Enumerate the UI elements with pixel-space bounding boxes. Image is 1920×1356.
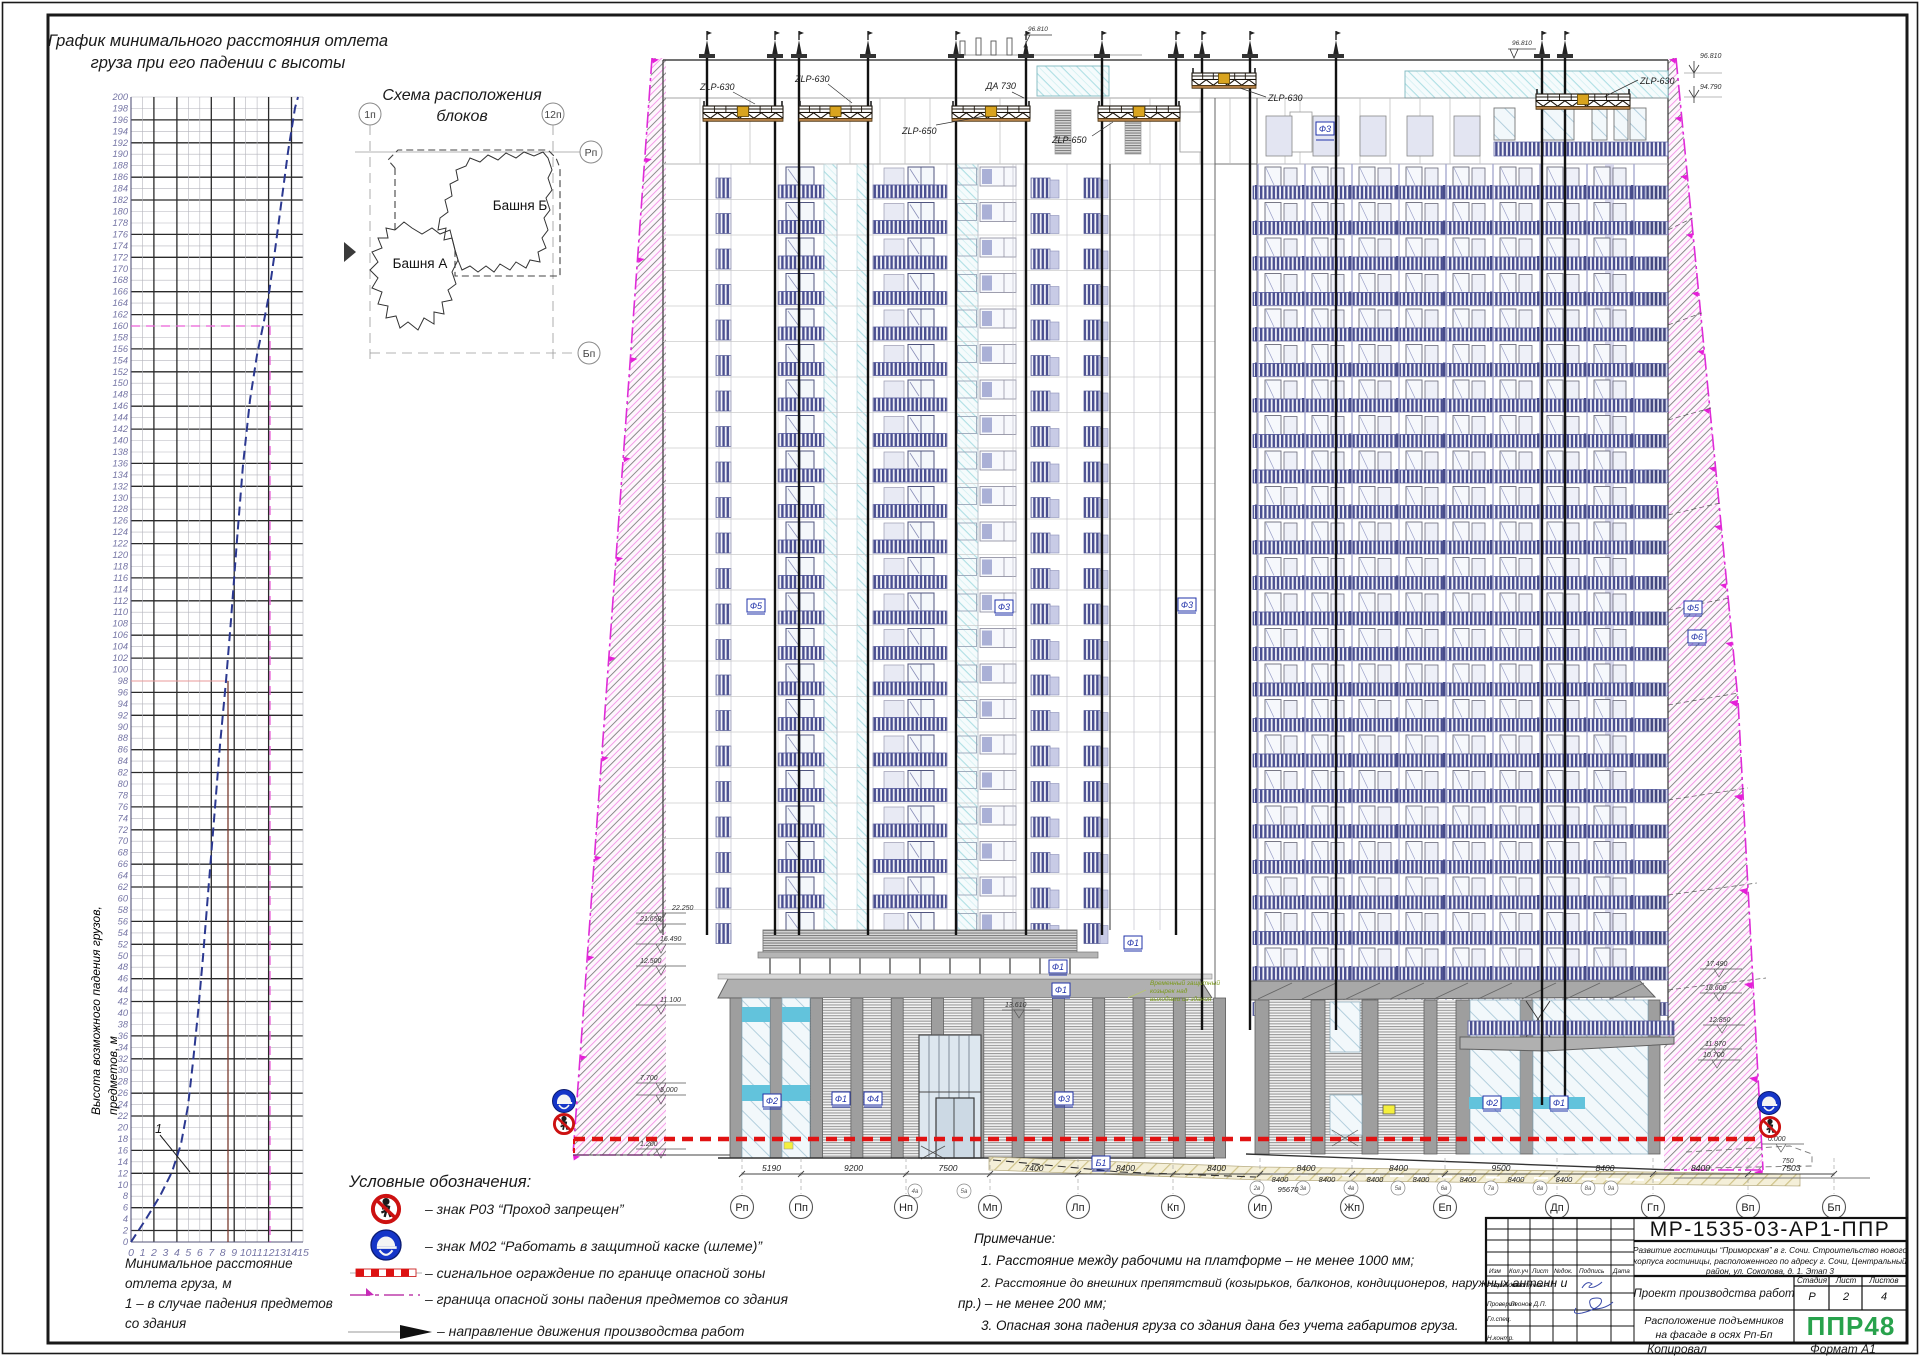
svg-text:132: 132 [112, 481, 128, 491]
svg-text:груза при его падении с высоты: груза при его падении с высоты [91, 54, 346, 72]
svg-text:Условные обозначения:: Условные обозначения: [348, 1173, 531, 1191]
svg-text:92: 92 [118, 710, 129, 720]
svg-text:12.500: 12.500 [640, 958, 662, 965]
svg-text:Вп: Вп [1741, 1202, 1754, 1214]
svg-text:8400: 8400 [1691, 1163, 1710, 1173]
svg-text:190: 190 [112, 149, 128, 159]
svg-text:ZLP-630: ZLP-630 [1267, 93, 1303, 103]
svg-text:7500: 7500 [939, 1163, 958, 1173]
svg-text:198: 198 [112, 104, 128, 114]
svg-text:86: 86 [118, 745, 129, 755]
svg-text:74: 74 [118, 813, 128, 823]
svg-text:156: 156 [112, 344, 128, 354]
svg-text:Ф1: Ф1 [1127, 938, 1139, 948]
svg-text:6: 6 [123, 1203, 129, 1213]
svg-text:8400: 8400 [1297, 1163, 1316, 1173]
svg-text:Лист: Лист [1835, 1276, 1857, 1285]
svg-text:140: 140 [112, 436, 128, 446]
svg-text:5190: 5190 [762, 1163, 781, 1173]
svg-text:42: 42 [118, 997, 129, 1007]
svg-text:8400: 8400 [1413, 1175, 1431, 1184]
svg-text:3. Опасная зона падения груза: 3. Опасная зона падения груза со здания … [981, 1318, 1459, 1333]
svg-text:Гл.спец.: Гл.спец. [1487, 1316, 1511, 1323]
svg-text:96: 96 [118, 687, 129, 697]
svg-text:40: 40 [118, 1008, 129, 1018]
svg-text:68: 68 [118, 848, 129, 858]
svg-text:58: 58 [118, 905, 129, 915]
svg-text:160: 160 [112, 321, 128, 331]
svg-text:Высота возможного падения груз: Высота возможного падения грузов, [89, 906, 103, 1115]
svg-text:Башня А: Башня А [393, 256, 448, 271]
svg-text:8400: 8400 [1460, 1175, 1478, 1184]
svg-text:Подпись: Подпись [1579, 1267, 1604, 1275]
svg-text:Ф1: Ф1 [835, 1094, 847, 1104]
svg-text:Еп: Еп [1438, 1202, 1451, 1214]
svg-text:9500: 9500 [1492, 1163, 1511, 1173]
svg-text:102: 102 [112, 653, 128, 663]
svg-text:Ф1: Ф1 [1055, 985, 1067, 995]
svg-text:Пп: Пп [794, 1202, 808, 1214]
svg-text:192: 192 [112, 138, 128, 148]
svg-text:3в: 3в [1300, 1186, 1306, 1192]
svg-text:Мп: Мп [982, 1202, 997, 1214]
svg-text:54: 54 [118, 928, 128, 938]
svg-text:Гп: Гп [1647, 1202, 1659, 1214]
svg-text:76: 76 [118, 802, 129, 812]
svg-text:Хвастунов А.: Хвастунов А. [1509, 1282, 1551, 1289]
svg-text:11.100: 11.100 [660, 997, 681, 1004]
svg-text:Ф3: Ф3 [1319, 124, 1331, 134]
svg-text:8а: 8а [1585, 1186, 1592, 1192]
svg-text:– знак М02 “Работать в защитно: – знак М02 “Работать в защитной каске (ш… [424, 1238, 763, 1254]
svg-text:предметов, м: предметов, м [106, 1036, 120, 1115]
svg-text:15: 15 [297, 1247, 309, 1259]
svg-text:Бп: Бп [1827, 1202, 1840, 1214]
svg-text:8400: 8400 [1272, 1175, 1290, 1184]
svg-text:170: 170 [112, 264, 128, 274]
svg-text:78: 78 [118, 791, 129, 801]
svg-text:Лист: Лист [1531, 1268, 1549, 1275]
svg-text:Листов: Листов [1868, 1276, 1898, 1285]
svg-text:Лп: Лп [1071, 1202, 1084, 1214]
svg-text:Башня Б: Башня Б [493, 198, 548, 213]
svg-text:96.810: 96.810 [1512, 40, 1532, 47]
svg-text:94: 94 [118, 699, 128, 709]
svg-text:11.870: 11.870 [1705, 1041, 1726, 1048]
svg-text:188: 188 [112, 161, 128, 171]
svg-text:44: 44 [118, 985, 128, 995]
svg-text:Ф5: Ф5 [750, 601, 763, 611]
svg-text:168: 168 [112, 275, 128, 285]
svg-text:62: 62 [118, 882, 129, 892]
svg-text:182: 182 [112, 195, 128, 205]
svg-text:124: 124 [112, 527, 128, 537]
svg-text:4: 4 [1881, 1291, 1887, 1303]
svg-text:График минимального расстояния: График минимального расстояния отлета [48, 32, 388, 50]
svg-text:1п: 1п [364, 109, 376, 121]
svg-text:164: 164 [112, 298, 128, 308]
svg-text:6в: 6в [1441, 1186, 1447, 1192]
svg-text:186: 186 [112, 172, 128, 182]
svg-text:166: 166 [112, 287, 128, 297]
svg-text:Ип: Ип [1253, 1202, 1267, 1214]
svg-text:17.490: 17.490 [1706, 961, 1728, 968]
svg-text:52: 52 [118, 939, 129, 949]
svg-text:88: 88 [118, 733, 129, 743]
svg-text:8в: 8в [1537, 1186, 1543, 1192]
svg-text:108: 108 [112, 619, 128, 629]
svg-text:– направление движения произво: – направление движения производства рабо… [436, 1323, 745, 1339]
svg-text:2в: 2в [1253, 1186, 1260, 1192]
svg-text:9а: 9а [1608, 1186, 1615, 1192]
svg-text:Жп: Жп [1344, 1202, 1360, 1214]
svg-text:200: 200 [111, 92, 128, 102]
svg-text:Ф2: Ф2 [1486, 1098, 1498, 1108]
svg-text:95670: 95670 [1278, 1185, 1300, 1194]
svg-text:Ф4: Ф4 [867, 1094, 879, 1104]
svg-text:отлета груза, м: отлета груза, м [125, 1276, 232, 1291]
svg-text:4в: 4в [1348, 1186, 1354, 1192]
svg-text:ZLP-630: ZLP-630 [1639, 76, 1675, 86]
svg-text:ZLP-630: ZLP-630 [794, 74, 830, 84]
svg-text:ZLP-630: ZLP-630 [699, 82, 735, 92]
svg-text:Формат А1: Формат А1 [1810, 1342, 1876, 1356]
svg-text:110: 110 [113, 607, 129, 617]
svg-text:Развитие гостиницы “Приморская: Развитие гостиницы “Приморская” в г. Соч… [1633, 1246, 1907, 1255]
svg-text:96.810: 96.810 [1700, 53, 1722, 60]
svg-text:114: 114 [113, 584, 128, 594]
svg-text:100: 100 [112, 665, 128, 675]
svg-text:174: 174 [112, 241, 128, 251]
svg-text:8400: 8400 [1556, 1175, 1574, 1184]
svg-text:Схема расположения: Схема расположения [382, 87, 542, 104]
svg-text:146: 146 [112, 401, 128, 411]
svg-text:корпуса гостиницы, расположенн: корпуса гостиницы, расположенного по адр… [1633, 1257, 1907, 1266]
svg-text:– знак Р03 “Проход запрещен”: – знак Р03 “Проход запрещен” [424, 1201, 625, 1217]
svg-text:16.600: 16.600 [1705, 985, 1727, 992]
svg-text:90: 90 [118, 722, 129, 732]
svg-text:выходами из здания: выходами из здания [1150, 995, 1212, 1003]
svg-text:Леонов Д.П.: Леонов Д.П. [1509, 1301, 1546, 1308]
svg-text:7503: 7503 [1782, 1163, 1801, 1173]
svg-text:Рп: Рп [735, 1202, 748, 1214]
svg-text:1.200: 1.200 [640, 1141, 658, 1148]
svg-text:козырек над: козырек над [1150, 987, 1188, 995]
svg-text:130: 130 [112, 493, 128, 503]
svg-text:Р: Р [1808, 1291, 1816, 1303]
svg-text:2: 2 [122, 1226, 129, 1236]
svg-text:172: 172 [112, 252, 128, 262]
svg-text:116: 116 [113, 573, 129, 583]
svg-text:120: 120 [112, 550, 128, 560]
svg-text:ZLP-650: ZLP-650 [901, 126, 937, 136]
svg-text:со здания: со здания [125, 1316, 186, 1331]
svg-text:56: 56 [118, 916, 129, 926]
svg-text:48: 48 [118, 962, 129, 972]
svg-text:196: 196 [112, 115, 128, 125]
svg-text:98: 98 [118, 676, 129, 686]
svg-text:Проект производства работ: Проект производства работ [1633, 1288, 1795, 1300]
svg-text:2: 2 [1842, 1291, 1849, 1303]
svg-text:122: 122 [112, 539, 128, 549]
svg-text:72: 72 [118, 825, 129, 835]
svg-text:МР-1535-03-АР1-ППР: МР-1535-03-АР1-ППР [1650, 1218, 1890, 1241]
svg-text:4: 4 [123, 1214, 128, 1224]
svg-text:118: 118 [113, 562, 129, 572]
svg-text:5.000: 5.000 [660, 1087, 678, 1094]
svg-text:Временный защитный: Временный защитный [1150, 979, 1220, 987]
svg-text:Стадия: Стадия [1797, 1276, 1828, 1285]
svg-text:на фасаде в осях Рп-Бп: на фасаде в осях Рп-Бп [1656, 1329, 1773, 1341]
svg-text:Б1: Б1 [1096, 1158, 1107, 1168]
svg-text:Ф3: Ф3 [998, 602, 1010, 612]
svg-text:13.610: 13.610 [1005, 1002, 1027, 1009]
svg-text:60: 60 [118, 894, 129, 904]
svg-text:Бп: Бп [583, 348, 596, 360]
svg-text:112: 112 [113, 596, 129, 606]
svg-text:8400: 8400 [1389, 1163, 1408, 1173]
svg-text:ДА 730: ДА 730 [985, 81, 1016, 91]
svg-text:Ф1: Ф1 [1052, 962, 1064, 972]
svg-text:14: 14 [118, 1157, 128, 1167]
svg-text:Нп: Нп [899, 1202, 913, 1214]
svg-text:2. Расстояние до внешних пре: 2. Расстояние до внешних препятствий (ко… [980, 1276, 1567, 1290]
svg-text:154: 154 [112, 355, 128, 365]
svg-text:64: 64 [118, 871, 128, 881]
svg-text:184: 184 [112, 184, 128, 194]
svg-text:5в: 5в [1395, 1186, 1401, 1192]
svg-text:12: 12 [118, 1168, 129, 1178]
svg-text:Минимальное расстояние: Минимальное расстояние [125, 1256, 293, 1271]
svg-text:80: 80 [118, 779, 129, 789]
svg-text:Изм: Изм [1489, 1268, 1501, 1275]
svg-text:96.810: 96.810 [1028, 26, 1048, 33]
svg-text:Копировал: Копировал [1647, 1342, 1707, 1356]
svg-text:8400: 8400 [1508, 1175, 1526, 1184]
svg-text:194: 194 [112, 126, 128, 136]
svg-text:8400: 8400 [1367, 1175, 1385, 1184]
svg-text:10: 10 [118, 1180, 129, 1190]
svg-text:ZLP-650: ZLP-650 [1051, 135, 1087, 145]
svg-text:пр.) – не менее 200 мм;: пр.) – не менее 200 мм; [958, 1296, 1107, 1311]
svg-text:136: 136 [112, 458, 128, 468]
svg-text:22.250: 22.250 [671, 905, 694, 912]
svg-text:7400: 7400 [1025, 1163, 1044, 1173]
svg-text:9200: 9200 [844, 1163, 863, 1173]
svg-text:4а: 4а [912, 1189, 919, 1195]
svg-text:Примечание:: Примечание: [974, 1231, 1056, 1246]
svg-text:176: 176 [112, 229, 128, 239]
svg-text:Дата: Дата [1612, 1268, 1630, 1275]
svg-text:144: 144 [112, 413, 128, 423]
svg-text:38: 38 [118, 1020, 129, 1030]
svg-text:128: 128 [112, 504, 128, 514]
svg-text:8400: 8400 [1596, 1163, 1615, 1173]
svg-text:82: 82 [118, 768, 129, 778]
svg-text:5а: 5а [961, 1189, 968, 1195]
svg-text:8400: 8400 [1207, 1163, 1226, 1173]
svg-text:46: 46 [118, 974, 129, 984]
svg-text:106: 106 [112, 630, 128, 640]
svg-text:94.790: 94.790 [1700, 84, 1722, 91]
svg-text:Ф3: Ф3 [1181, 600, 1193, 610]
svg-text:ППР48: ППР48 [1807, 1311, 1896, 1341]
svg-text:66: 66 [118, 859, 129, 869]
svg-text:– сигнальное ограждение по гра: – сигнальное ограждение по границе опасн… [424, 1265, 766, 1281]
svg-text:Дп: Дп [1550, 1202, 1563, 1214]
svg-text:16: 16 [118, 1145, 129, 1155]
svg-text:7в: 7в [1488, 1186, 1494, 1192]
svg-text:104: 104 [112, 642, 128, 652]
svg-text:12п: 12п [544, 109, 561, 121]
svg-text:148: 148 [112, 390, 128, 400]
svg-text:блоков: блоков [436, 108, 487, 125]
svg-text:178: 178 [112, 218, 128, 228]
svg-text:16.490: 16.490 [660, 936, 682, 943]
svg-text:162: 162 [112, 310, 128, 320]
svg-text:Кол.уч: Кол.уч [1509, 1268, 1529, 1275]
svg-text:150: 150 [112, 378, 128, 388]
svg-text:126: 126 [112, 516, 128, 526]
svg-text:1 – в случае падения предметов: 1 – в случае падения предметов [125, 1296, 333, 1311]
svg-text:8: 8 [123, 1191, 129, 1201]
svg-text:70: 70 [118, 836, 129, 846]
svg-text:142: 142 [112, 424, 128, 434]
svg-text:Ф6: Ф6 [1691, 632, 1703, 642]
svg-text:№док.: №док. [1554, 1267, 1573, 1275]
svg-text:Ф2: Ф2 [766, 1096, 778, 1106]
svg-text:Кп: Кп [1167, 1202, 1179, 1214]
svg-text:Рп: Рп [585, 147, 598, 159]
svg-text:район, ул. Соколова, д. 1. Эта: район, ул. Соколова, д. 1. Этап 3 [1705, 1267, 1834, 1276]
svg-text:12.850: 12.850 [1709, 1017, 1731, 1024]
svg-text:158: 158 [112, 333, 128, 343]
svg-text:152: 152 [112, 367, 128, 377]
svg-text:7.700: 7.700 [640, 1075, 658, 1082]
svg-text:8400: 8400 [1319, 1175, 1337, 1184]
svg-text:– граница опасной зоны падения: – граница опасной зоны падения предметов… [424, 1291, 788, 1307]
svg-text:Ф5: Ф5 [1687, 603, 1700, 613]
svg-text:8400: 8400 [1116, 1163, 1135, 1173]
svg-text:84: 84 [118, 756, 128, 766]
svg-text:50: 50 [118, 951, 129, 961]
svg-text:1. Расстояние между рабочими: 1. Расстояние между рабочими на платформ… [981, 1253, 1414, 1268]
svg-text:Ф1: Ф1 [1553, 1098, 1565, 1108]
svg-text:Н.контр.: Н.контр. [1487, 1335, 1514, 1342]
svg-text:Ф3: Ф3 [1058, 1094, 1070, 1104]
svg-text:18: 18 [118, 1134, 129, 1144]
svg-text:20: 20 [117, 1123, 129, 1133]
svg-text:180: 180 [112, 207, 128, 217]
svg-text:1: 1 [155, 1121, 162, 1136]
svg-text:0: 0 [123, 1237, 129, 1247]
svg-text:138: 138 [112, 447, 128, 457]
svg-text:Расположение подъемников: Расположение подъемников [1644, 1315, 1784, 1327]
svg-text:134: 134 [112, 470, 128, 480]
